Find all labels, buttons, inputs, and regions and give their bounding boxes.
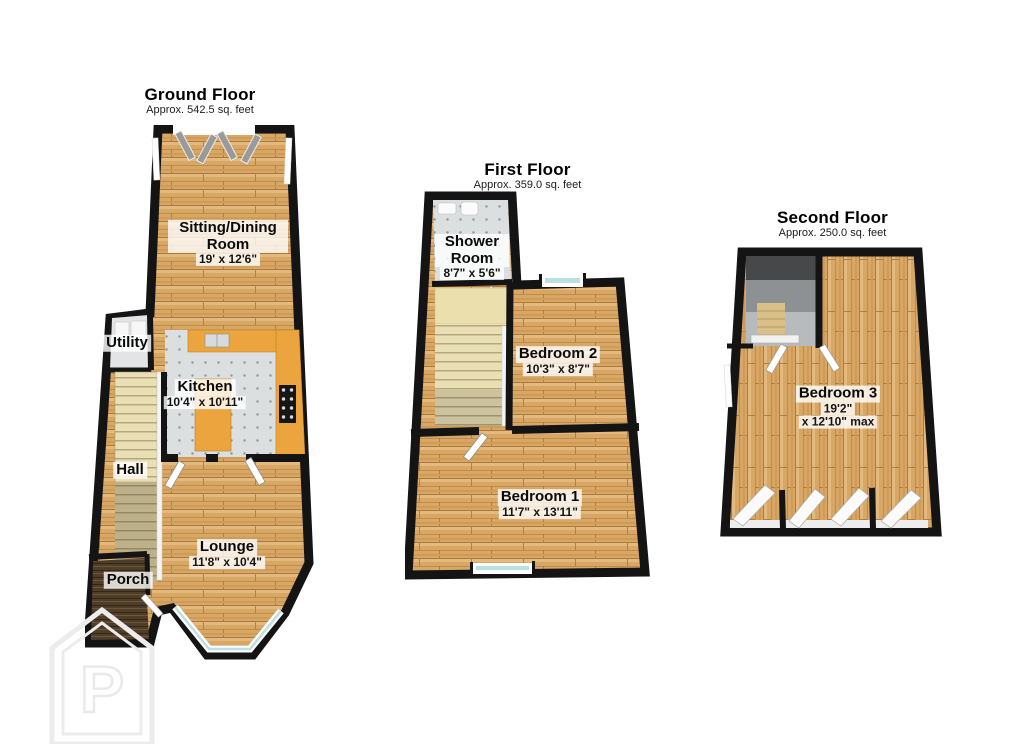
room-dims-line2: x 12'10" max bbox=[799, 415, 878, 428]
ground-floor-subtitle: Approx. 542.5 sq. feet bbox=[85, 104, 315, 116]
second-floor-subtitle: Approx. 250.0 sq. feet bbox=[715, 227, 950, 239]
room-label-utility: Utility bbox=[103, 335, 151, 352]
room-dims: 10'3" x 8'7" bbox=[523, 363, 593, 376]
room-name: Bedroom 1 bbox=[498, 489, 582, 506]
room-label-bedroom2: Bedroom 2 10'3" x 8'7" bbox=[516, 346, 600, 376]
room-name: Lounge bbox=[197, 539, 257, 556]
room-dims: 8'7" x 5'6" bbox=[440, 267, 503, 280]
room-label-sitting-dining: Sitting/Dining Room 19' x 12'6" bbox=[168, 220, 288, 266]
room-label-bedroom1: Bedroom 1 11'7" x 13'11" bbox=[498, 489, 582, 519]
second-floor-title: Second Floor bbox=[715, 208, 950, 228]
room-name: Bedroom 2 bbox=[516, 346, 600, 363]
ground-floor-section: Ground Floor Approx. 542.5 sq. feet bbox=[85, 85, 315, 685]
room-name: Kitchen bbox=[174, 379, 235, 396]
first-floor-title: First Floor bbox=[405, 160, 650, 180]
room-dims: 19' x 12'6" bbox=[196, 253, 260, 266]
room-name: Sitting/Dining Room bbox=[168, 220, 288, 253]
room-label-hall: Hall bbox=[113, 462, 147, 479]
floorplan-canvas: Ground Floor Approx. 542.5 sq. feet bbox=[0, 0, 1024, 744]
room-dims: 11'7" x 13'11" bbox=[499, 506, 581, 519]
room-label-shower: Shower Room 8'7" x 5'6" bbox=[435, 234, 509, 280]
watermark-letter: P bbox=[80, 652, 124, 726]
second-floor-section: Second Floor Approx. 250.0 sq. feet bbox=[715, 208, 950, 548]
room-dims-line1: 19'2" bbox=[821, 402, 856, 415]
watermark-logo: P bbox=[48, 606, 158, 744]
room-dims: 11'8" x 10'4" bbox=[189, 556, 265, 569]
room-name: Porch bbox=[104, 572, 153, 589]
room-name: Bedroom 3 bbox=[796, 386, 880, 403]
house-logo-icon: P bbox=[48, 606, 158, 744]
room-label-kitchen: Kitchen 10'4" x 10'11" bbox=[164, 379, 246, 409]
room-name: Utility bbox=[103, 335, 151, 352]
first-floor-section: First Floor Approx. 359.0 sq. feet bbox=[405, 160, 650, 610]
bedroom2-window bbox=[539, 273, 586, 288]
bedroom1-window bbox=[470, 561, 535, 575]
room-label-porch: Porch bbox=[104, 572, 153, 589]
room-name: Shower Room bbox=[435, 234, 509, 267]
staircase-first bbox=[435, 282, 510, 430]
room-label-lounge: Lounge 11'8" x 10'4" bbox=[189, 539, 265, 569]
ground-floor-title: Ground Floor bbox=[85, 85, 315, 105]
room-label-bedroom3: Bedroom 3 19'2" x 12'10" max bbox=[796, 386, 880, 429]
stair-railing bbox=[751, 335, 799, 343]
room-dims: 10'4" x 10'11" bbox=[164, 396, 246, 409]
hob-icon bbox=[279, 385, 296, 423]
room-name: Hall bbox=[113, 462, 147, 479]
